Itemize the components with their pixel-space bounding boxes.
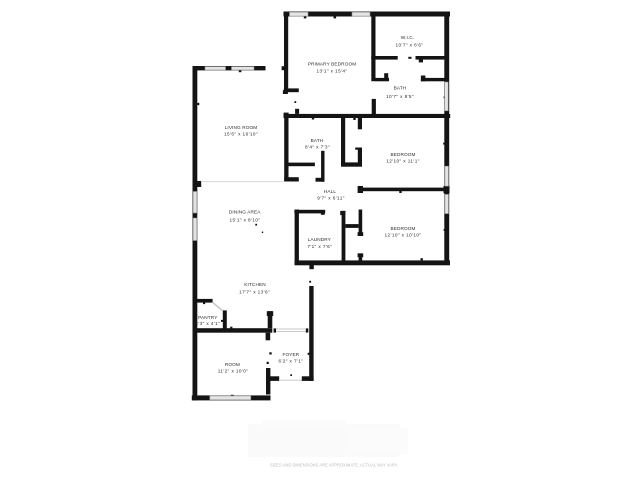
svg-text:BEDROOM: BEDROOM xyxy=(390,152,415,157)
svg-text:12'10" x 10'10": 12'10" x 10'10" xyxy=(385,232,422,237)
svg-text:12'10" x 11'1": 12'10" x 11'1" xyxy=(386,159,420,164)
svg-text:15'6" x 16'10": 15'6" x 16'10" xyxy=(224,132,258,137)
svg-text:4'3" x 4'1": 4'3" x 4'1" xyxy=(195,321,220,326)
svg-text:DINING AREA: DINING AREA xyxy=(229,210,261,215)
svg-text:KITCHEN: KITCHEN xyxy=(244,282,265,287)
svg-text:FOYER: FOYER xyxy=(283,352,300,357)
svg-text:LIVING ROOM: LIVING ROOM xyxy=(225,125,258,130)
svg-text:7'1" x 7'6": 7'1" x 7'6" xyxy=(307,244,332,249)
svg-text:HALL: HALL xyxy=(324,189,336,194)
svg-text:10'7" x 6'6": 10'7" x 6'6" xyxy=(396,43,424,48)
svg-text:ROOM: ROOM xyxy=(225,362,240,367)
svg-text:17'7" x 13'6": 17'7" x 13'6" xyxy=(239,290,270,295)
svg-text:W.I.C.: W.I.C. xyxy=(401,35,414,40)
svg-text:LAUNDRY: LAUNDRY xyxy=(308,237,332,242)
svg-text:PRIMARY BEDROOM: PRIMARY BEDROOM xyxy=(308,61,357,66)
svg-text:13'1" x 15'4": 13'1" x 15'4" xyxy=(317,69,348,74)
svg-text:SIZES AND DIMENSIONS ARE APPRO: SIZES AND DIMENSIONS ARE APPROXIMATE, AC… xyxy=(270,463,398,468)
svg-text:8'4" x 7'3": 8'4" x 7'3" xyxy=(305,145,330,150)
svg-text:9'7" x 6'11": 9'7" x 6'11" xyxy=(317,196,345,201)
svg-text:BEDROOM: BEDROOM xyxy=(390,226,415,231)
svg-text:BATH: BATH xyxy=(311,138,324,143)
svg-text:10'7" x 8'5": 10'7" x 8'5" xyxy=(386,94,414,99)
svg-text:PANTRY: PANTRY xyxy=(198,315,218,320)
svg-text:11'2" x 10'0": 11'2" x 10'0" xyxy=(218,369,249,374)
svg-text:BATH: BATH xyxy=(394,86,407,91)
svg-text:6'2" x 7'1": 6'2" x 7'1" xyxy=(278,358,303,363)
svg-text:15'1" x 8'10": 15'1" x 8'10" xyxy=(230,217,261,222)
